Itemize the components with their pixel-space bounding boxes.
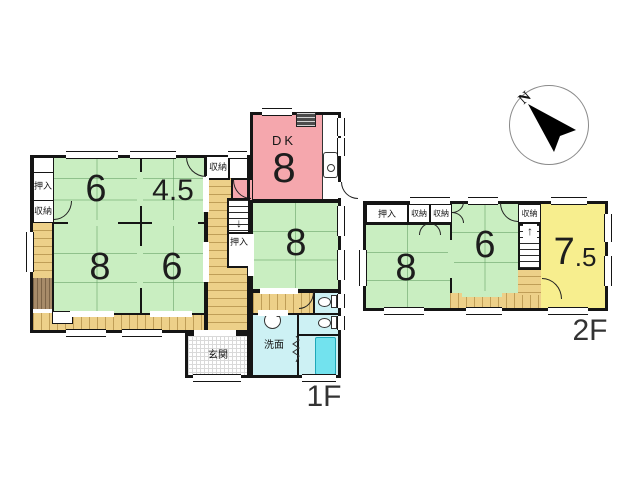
window [228, 151, 247, 159]
window [122, 329, 162, 337]
room-size-label: 4.5 [138, 170, 208, 212]
stairs-up-arrow-icon: ↑ [523, 224, 537, 238]
room-size-small: .5 [575, 244, 597, 270]
window [604, 214, 612, 242]
floor2-label: 2F [562, 314, 618, 348]
closet-label: 収納 [518, 208, 541, 220]
window [468, 197, 498, 205]
opening [258, 310, 288, 316]
floorplan-canvas: ↓ 押入 収納 収納 押入 6 4.5 8 6 8 DK 8 玄関 洗面 1F [0, 0, 640, 480]
dk-size-label: 8 [262, 146, 306, 190]
compass: N [509, 85, 589, 165]
window [337, 316, 345, 330]
window [66, 329, 106, 337]
closet-label: 収納 [430, 208, 452, 220]
wall-wet-block [250, 290, 341, 378]
window [337, 206, 345, 236]
window [337, 118, 345, 136]
room-size-label: 8 [266, 219, 326, 267]
window [337, 138, 345, 156]
closet-label: 収納 [206, 161, 230, 173]
opening [203, 242, 209, 282]
window [384, 307, 424, 315]
window [604, 256, 612, 286]
window [337, 294, 345, 308]
opening [194, 330, 236, 336]
floor1-label: 1F [296, 380, 352, 414]
room-size-big: 7 [554, 233, 575, 271]
kitchen-faucet-icon [327, 164, 335, 172]
opening [462, 291, 502, 297]
closet-label: 収納 [408, 208, 430, 220]
opening [448, 240, 454, 278]
stairs-down-arrow-icon: ↓ [232, 216, 246, 230]
water-heater-icon [296, 112, 316, 127]
opening [260, 288, 298, 294]
washroom-label: 洗面 [259, 339, 289, 352]
room-size-label: 6 [142, 243, 202, 291]
window [66, 151, 118, 159]
room-size-label: 6 [455, 221, 515, 269]
entrance-label: 玄関 [201, 349, 235, 362]
opening [150, 311, 192, 317]
closet-label: 押入 [225, 236, 253, 248]
window [130, 151, 176, 159]
window [359, 250, 367, 286]
window [337, 250, 345, 280]
opening [68, 220, 118, 226]
room-size-label: 8 [70, 243, 130, 291]
window [26, 232, 34, 272]
entrance-sliding-door [193, 374, 241, 382]
opening [152, 220, 198, 226]
opening [70, 311, 114, 317]
room-size-label: 6 [66, 166, 126, 212]
room-size-label: 7.5 [546, 228, 604, 276]
closet-label: 押入 [368, 208, 406, 220]
window [466, 307, 502, 315]
window [410, 197, 450, 205]
closet-label: 押入 [29, 180, 57, 192]
room-size-label: 8 [376, 244, 436, 292]
window [262, 108, 292, 116]
closet-label: 収納 [29, 205, 57, 217]
window [551, 197, 587, 205]
